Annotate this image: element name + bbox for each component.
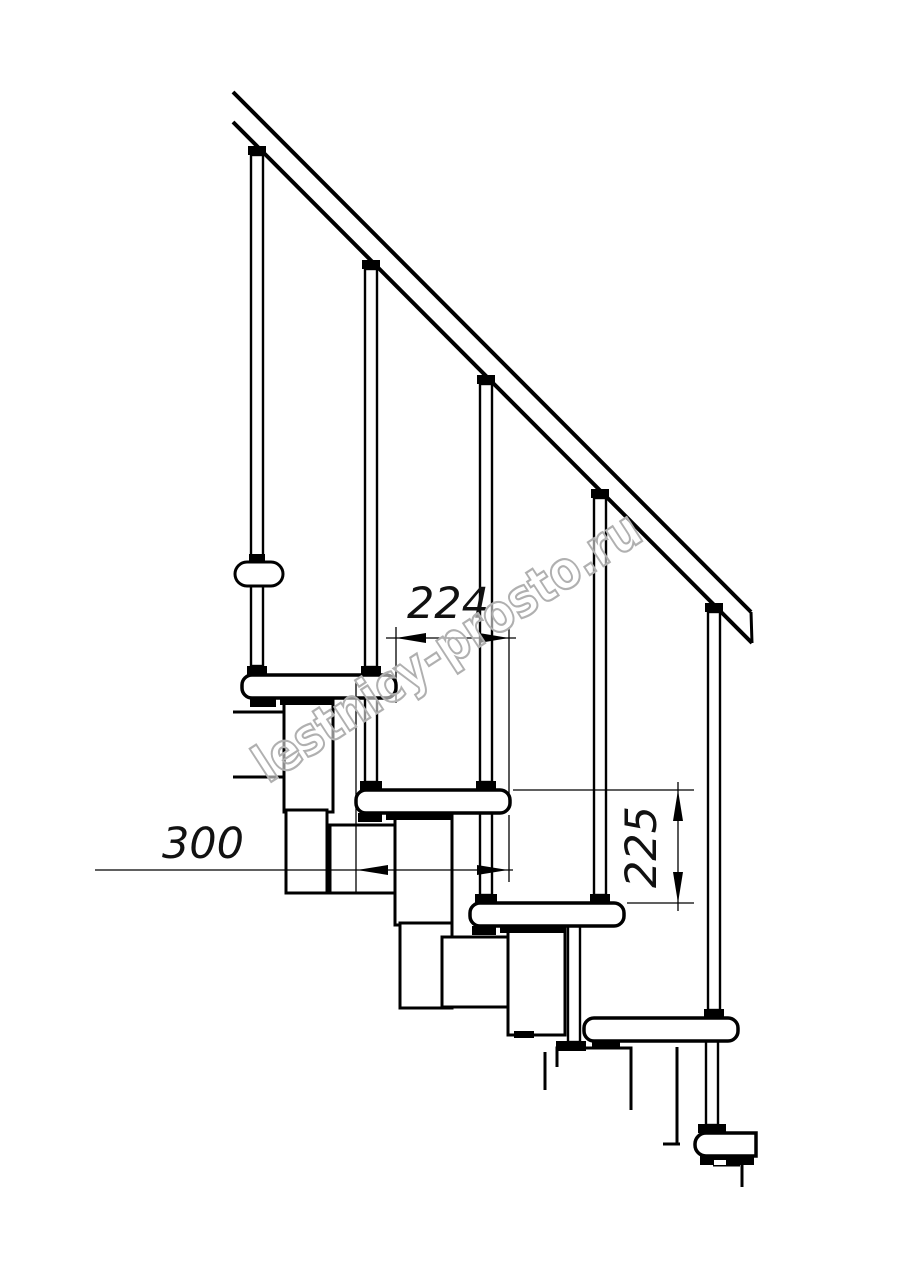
watermark-text: lestnicy-prosto.ru <box>242 499 652 794</box>
handrail-end-cut <box>751 612 752 643</box>
mount-strip-1a <box>250 698 276 707</box>
baluster-1-upper <box>251 155 263 562</box>
mount-strip-5-notch <box>714 1160 726 1165</box>
tread-5-partial <box>695 1133 756 1156</box>
drawing-canvas: 224 300 225 lestnicy-prosto.ru <box>0 0 914 1280</box>
mount-strip-3a <box>472 926 496 935</box>
tread-3 <box>470 903 624 926</box>
module-socket-3-partial <box>557 1048 631 1110</box>
baluster-5 <box>708 612 720 1010</box>
mount-strip-2b <box>386 813 452 820</box>
baluster-4-base-fitting <box>590 894 610 903</box>
baluster-5-base-fitting <box>704 1009 724 1018</box>
module-neck-3-foot <box>514 1031 534 1038</box>
mount-strip-4b <box>592 1041 620 1048</box>
rod-1-base-fitting <box>360 781 382 790</box>
link-rod-3 <box>568 926 580 1042</box>
staircase-technical-drawing: 224 300 225 lestnicy-prosto.ru <box>0 0 914 1280</box>
dim-225-arrow-down <box>673 872 683 903</box>
baluster-1-lower <box>251 586 263 666</box>
module-neck-1b <box>286 810 327 893</box>
mount-strip-2a <box>358 813 382 822</box>
module-neck-3 <box>508 926 565 1035</box>
dim-225-label: 225 <box>617 806 667 888</box>
rod-2-base-fitting <box>475 894 497 903</box>
handrail-bracket <box>235 562 283 586</box>
baluster-2 <box>365 269 377 667</box>
baluster-1-base-fitting <box>247 666 267 675</box>
module-neck-2 <box>395 813 452 925</box>
mount-strip-5 <box>700 1156 754 1165</box>
rod-3-base-fitting <box>556 1041 586 1051</box>
link-rod-4 <box>706 1041 718 1125</box>
module-neck-4-partial <box>663 1047 680 1144</box>
tread-2 <box>356 790 510 813</box>
mount-strip-3b <box>500 926 565 933</box>
rod-4-base-fitting <box>698 1124 726 1133</box>
dim-300-label: 300 <box>162 819 244 869</box>
tread-4 <box>584 1018 738 1041</box>
baluster-3-base-fitting <box>476 781 496 790</box>
link-rod-2 <box>480 813 492 895</box>
dim-225-arrow-up <box>673 790 683 821</box>
module-under-tread5-partial <box>713 1163 742 1187</box>
